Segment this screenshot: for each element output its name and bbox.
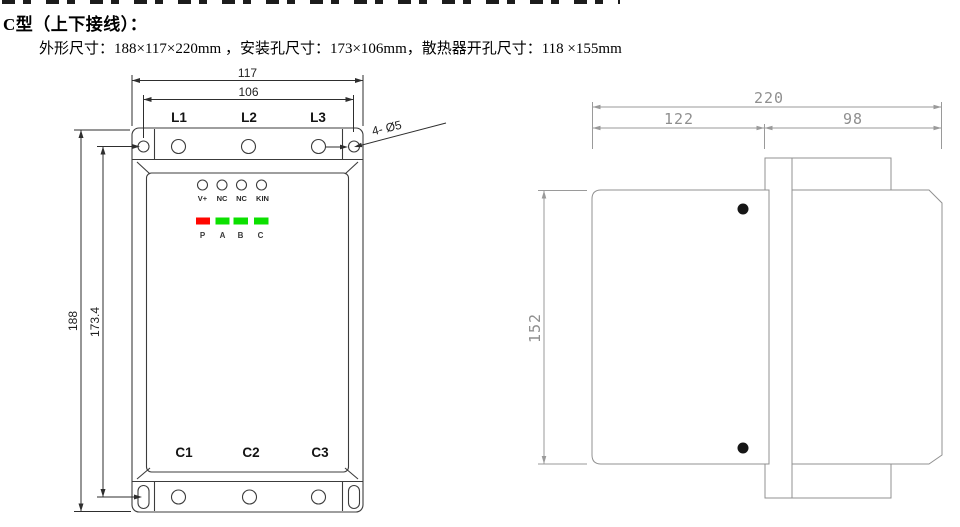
svg-text:152: 152 — [526, 313, 544, 343]
terminal-label-l3: L3 — [310, 110, 326, 125]
dim-depth-total: 220 — [593, 89, 942, 149]
control-port-hole — [198, 180, 208, 190]
screw-dot — [738, 443, 749, 454]
svg-text:220: 220 — [754, 89, 784, 107]
led-phase-a-green — [216, 218, 230, 225]
svg-text:188: 188 — [66, 311, 80, 331]
terminal-hole — [312, 490, 326, 504]
terminal-hole — [172, 490, 186, 504]
heatsink-top-tab — [792, 158, 891, 190]
manual-page: C型（上下接线）： 外形尺寸：188×117×220mm ，安装孔尺寸：173×… — [0, 0, 960, 527]
terminal-hole — [172, 140, 186, 154]
led-power-red — [196, 218, 210, 225]
terminal-label-c1: C1 — [175, 445, 193, 460]
heatsink-fin-block — [792, 190, 942, 464]
svg-text:106: 106 — [238, 85, 258, 99]
terminal-label-c2: C2 — [242, 445, 259, 460]
port-label-nc1: NC — [217, 194, 228, 203]
terminal-label-l1: L1 — [171, 110, 187, 125]
led-label-a: A — [220, 231, 226, 240]
heatsink-bottom-tab — [792, 464, 891, 498]
screw-dot — [738, 204, 749, 215]
mounting-slot — [349, 486, 360, 509]
led-label-b: B — [238, 231, 244, 240]
dim-depth-rear-label: 98 — [843, 110, 863, 128]
control-port-hole — [257, 180, 267, 190]
module-body-side — [592, 190, 769, 464]
terminal-hole — [312, 140, 326, 154]
port-label-vplus: V+ — [198, 194, 208, 203]
port-label-kin: KIN — [256, 194, 269, 203]
technical-drawing: L1 L2 L3 C1 C2 C3 V+ NC NC KIN P A B C — [0, 0, 960, 527]
control-port-hole — [237, 180, 247, 190]
port-label-nc2: NC — [236, 194, 247, 203]
terminal-hole — [243, 490, 257, 504]
led-phase-c-green — [254, 218, 269, 225]
terminal-label-l2: L2 — [241, 110, 257, 125]
led-label-p: P — [200, 231, 206, 240]
led-label-c: C — [258, 231, 264, 240]
dim-height-body: 152 — [526, 191, 587, 465]
svg-text:117: 117 — [238, 66, 257, 80]
terminal-label-c3: C3 — [311, 445, 329, 460]
side-view: 220 122 98 152 — [526, 89, 942, 498]
dim-depth-front-label: 122 — [664, 110, 694, 128]
control-port-hole — [217, 180, 227, 190]
terminal-hole — [242, 140, 256, 154]
front-view: L1 L2 L3 C1 C2 C3 V+ NC NC KIN P A B C — [66, 66, 446, 512]
dim-depth-split: 122 98 — [593, 110, 942, 149]
svg-text:173.4: 173.4 — [88, 307, 102, 337]
led-phase-b-green — [234, 218, 249, 225]
